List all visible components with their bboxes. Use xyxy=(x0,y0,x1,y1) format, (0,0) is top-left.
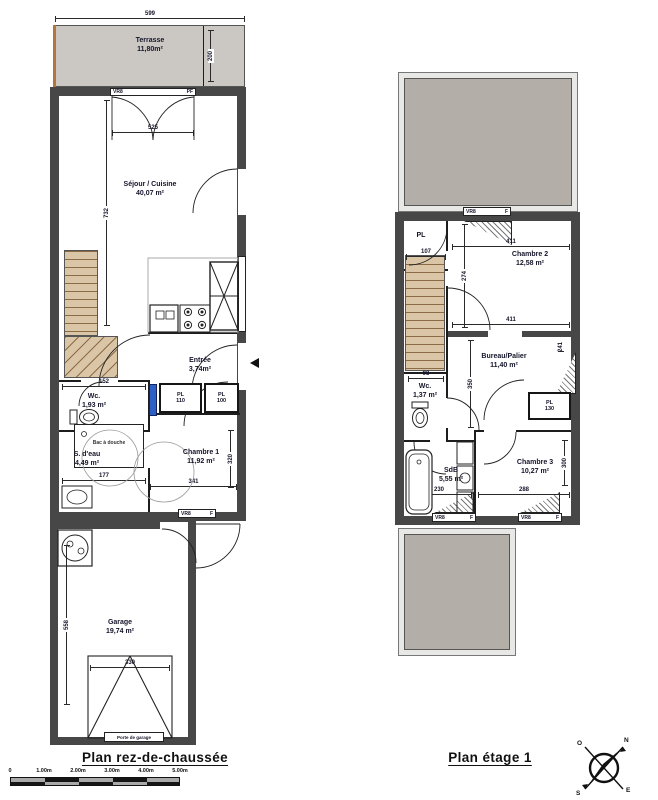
shower-drain xyxy=(82,432,87,437)
ff-top-window: VR8 F xyxy=(463,207,511,216)
electrical-panel xyxy=(149,384,157,416)
stove-burners xyxy=(180,305,210,332)
pl110-closet: PL 110 xyxy=(159,383,202,413)
entrance-arrow-icon xyxy=(250,358,259,368)
ff-window-ch3: VR8 F xyxy=(518,513,562,522)
toilet-tank xyxy=(70,410,77,424)
gf-caption: Plan rez-de-chaussée xyxy=(60,750,250,765)
shower-label: Bac à douche xyxy=(80,440,138,446)
bureau-label: Bureau/Palier 11,40 m² xyxy=(468,352,540,371)
garage-door-label: Porte de garage xyxy=(104,732,164,742)
chambre1-label: Chambre 1 11,92 m² xyxy=(170,448,232,467)
compass-south: S xyxy=(576,790,580,797)
sejour-label: Séjour / Cuisine 40,07 m² xyxy=(90,180,210,199)
chambre2-label: Chambre 2 12,58 m² xyxy=(494,250,566,269)
ff-fixtures xyxy=(406,402,473,514)
garage-door-symbol xyxy=(88,656,172,738)
window-label-vr8: VR8 xyxy=(113,89,123,95)
sdb-label: SdB 5,55 m² xyxy=(428,466,474,485)
pl130-closet: PL 130 xyxy=(528,392,571,420)
compass-north: N xyxy=(624,737,629,744)
ff-pl-label: PL xyxy=(406,231,436,240)
chambre3-label: Chambre 3 10,27 m² xyxy=(503,458,567,477)
sdeau-label: S. d'eau 4,49 m² xyxy=(58,450,116,469)
entree-label: Entrée 3,74m² xyxy=(172,356,228,375)
window-label-pf: PF xyxy=(187,89,193,95)
compass-west: O xyxy=(577,740,582,747)
ff-toilet-tank xyxy=(412,402,428,408)
terrace-label: Terrasse 11,80m² xyxy=(90,36,210,55)
compass-east: E xyxy=(626,787,630,794)
wc-label: Wc. 1,93 m² xyxy=(68,392,120,411)
chambre1-window: VR8 F xyxy=(178,509,216,518)
ff-caption: Plan étage 1 xyxy=(410,750,570,765)
ff-window-sdb: VR8 F xyxy=(432,513,476,522)
compass-icon xyxy=(582,747,626,789)
kitchen-fixtures xyxy=(148,258,238,332)
gf-terrace-door-window: VR8 PF xyxy=(110,88,196,96)
ff-wc-label: Wc. 1,37 m² xyxy=(400,382,450,401)
pl100-closet: PL 100 xyxy=(204,383,239,413)
garage-label: Garage 19,74 m² xyxy=(85,618,155,637)
floorplan-sheet: Terrasse 11,80m² 599 200 VR8 PF 525 Séjo… xyxy=(0,0,658,800)
